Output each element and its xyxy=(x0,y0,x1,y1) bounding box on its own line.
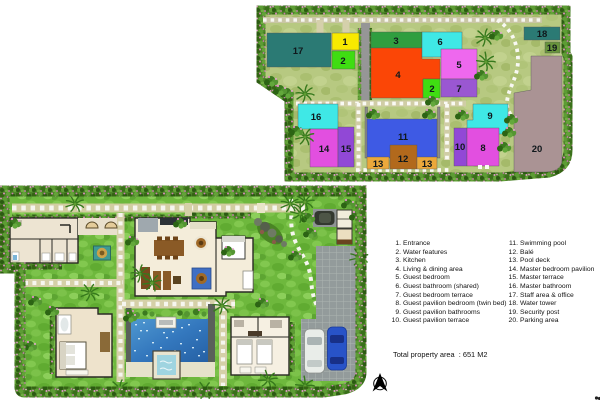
svg-text:19: 19 xyxy=(547,43,558,54)
svg-text:5: 5 xyxy=(456,60,462,71)
svg-text:17: 17 xyxy=(293,46,304,57)
svg-text:9: 9 xyxy=(487,111,492,122)
svg-text:3: 3 xyxy=(393,36,398,47)
svg-text:4: 4 xyxy=(395,70,401,81)
svg-text:8: 8 xyxy=(480,143,485,154)
svg-text:16: 16 xyxy=(311,112,322,123)
svg-text:2: 2 xyxy=(340,56,345,67)
svg-text:12: 12 xyxy=(398,154,409,165)
svg-text:2: 2 xyxy=(429,84,434,95)
svg-text:18: 18 xyxy=(537,29,548,40)
svg-text:20: 20 xyxy=(532,144,543,155)
svg-text:1: 1 xyxy=(342,37,348,48)
svg-text:6: 6 xyxy=(437,37,442,48)
svg-text:13: 13 xyxy=(373,159,384,170)
svg-text:13: 13 xyxy=(422,159,433,170)
svg-text:11: 11 xyxy=(398,132,409,143)
svg-text:15: 15 xyxy=(341,144,352,155)
svg-text:7: 7 xyxy=(456,84,461,95)
svg-text:14: 14 xyxy=(319,144,330,155)
svg-text:10: 10 xyxy=(455,142,466,153)
